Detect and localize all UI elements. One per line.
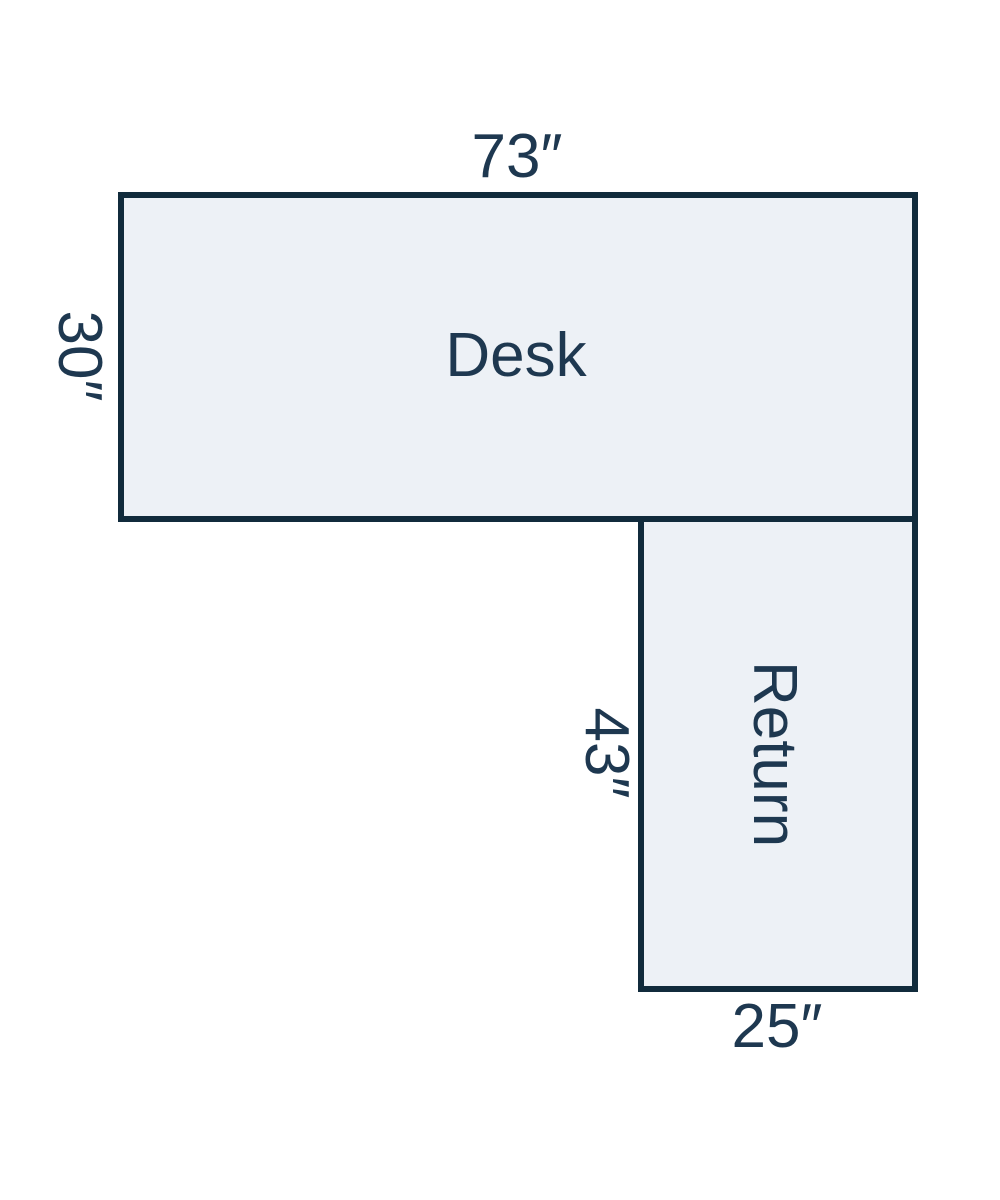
return-label: Return [743,661,805,847]
dimension-diagram-canvas: 73″ 30″ Desk Return 43″ 25″ [0,0,1000,1200]
desk-width-dimension-label: 73″ [472,126,563,188]
return-length-dimension-label: 43″ [575,708,637,799]
desk-label: Desk [445,325,586,387]
desk-depth-dimension-label: 30″ [48,311,110,402]
return-width-dimension-label: 25″ [732,996,823,1058]
